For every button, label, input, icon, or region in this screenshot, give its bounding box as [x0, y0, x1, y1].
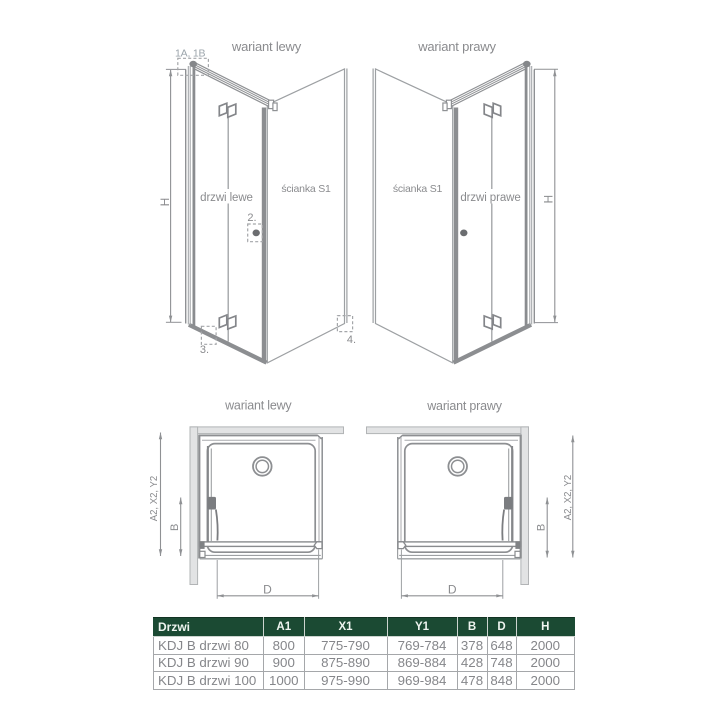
svg-text:D: D [448, 583, 457, 597]
svg-text:H: H [158, 198, 172, 207]
svg-text:2.: 2. [247, 212, 256, 224]
svg-text:B: B [169, 524, 181, 531]
svg-text:4.: 4. [347, 334, 356, 346]
svg-text:wariant lewy: wariant lewy [231, 39, 302, 54]
svg-text:A2, X2, Y2: A2, X2, Y2 [562, 475, 574, 521]
svg-text:ścianka S1: ścianka S1 [281, 183, 331, 195]
svg-text:B: B [536, 524, 548, 531]
svg-text:wariant prawy: wariant prawy [417, 39, 496, 54]
svg-text:3.: 3. [200, 344, 209, 356]
svg-text:drzwi lewe: drzwi lewe [200, 192, 253, 204]
svg-text:1A, 1B: 1A, 1B [175, 48, 206, 60]
svg-text:wariant lewy: wariant lewy [224, 399, 292, 413]
svg-text:A2, X2, Y2: A2, X2, Y2 [148, 476, 160, 522]
svg-text:D: D [263, 583, 272, 597]
svg-text:H: H [542, 195, 556, 204]
svg-text:wariant prawy: wariant prawy [426, 399, 502, 413]
svg-text:ścianka S1: ścianka S1 [393, 183, 443, 195]
svg-text:drzwi prawe: drzwi prawe [460, 192, 520, 204]
